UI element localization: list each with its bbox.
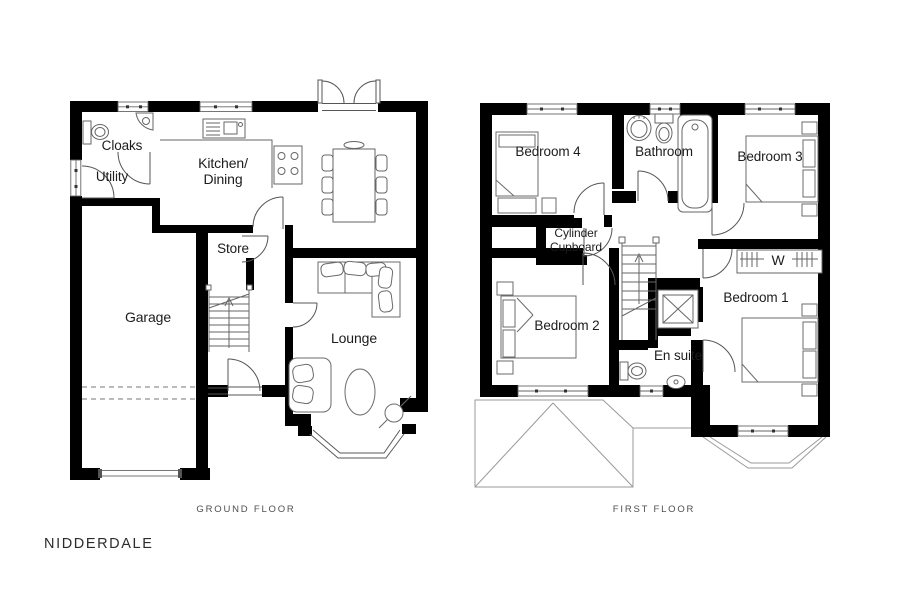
corner-sofa (318, 261, 400, 317)
ensuite-toilet (620, 362, 646, 380)
staircase-ground (206, 285, 252, 352)
cylinder-cupboard-line1: Cylinder (550, 227, 602, 241)
dining-table (322, 142, 387, 223)
kitchen-sink (203, 119, 245, 138)
first-floor-caption: FIRST FLOOR (613, 504, 695, 515)
room-label-bedroom4: Bedroom 4 (515, 144, 580, 160)
bed-double-bedroom3 (746, 122, 818, 216)
roof-outline (475, 400, 826, 487)
room-label-kitchen-dining: Kitchen/ Dining (198, 155, 248, 187)
room-label-lounge: Lounge (331, 330, 377, 346)
room-label-bedroom1: Bedroom 1 (723, 290, 788, 306)
room-label-cloaks: Cloaks (102, 138, 143, 154)
plot-title: NIDDERDALE (44, 536, 153, 552)
room-label-garage: Garage (125, 309, 171, 325)
kitchen-dining-line1: Kitchen/ (198, 155, 248, 171)
room-label-ensuite: En suite (654, 348, 702, 364)
french-door (318, 80, 380, 111)
room-label-bedroom3: Bedroom 3 (737, 149, 802, 165)
room-label-wardrobe: W (771, 252, 784, 268)
ensuite-basin (667, 376, 685, 389)
bathroom-toilet (655, 114, 673, 143)
bathroom-basin (627, 116, 651, 141)
bathtub (678, 115, 712, 212)
first-doors (574, 171, 744, 372)
kitchen-hob (274, 146, 302, 184)
room-label-cylinder-cupboard: Cylinder Cupboard (550, 227, 602, 255)
garage-door (82, 387, 196, 478)
ground-floor-caption: GROUND FLOOR (196, 504, 295, 515)
shower (658, 290, 698, 328)
kitchen-dining-line2: Dining (198, 171, 248, 187)
room-label-bathroom: Bathroom (635, 144, 693, 160)
room-label-utility: Utility (96, 169, 128, 185)
room-label-bedroom2: Bedroom 2 (534, 318, 599, 334)
floorplan-page: Cloaks Utility Kitchen/ Dining Store Gar… (0, 0, 900, 600)
cloaks-corner-basin (136, 113, 153, 130)
armchair (289, 358, 331, 412)
cylinder-cupboard-line2: Cupboard (550, 241, 602, 255)
coffee-table (345, 369, 375, 415)
bay-window (310, 430, 404, 458)
room-label-store: Store (217, 241, 249, 257)
bed-double-bedroom1 (742, 304, 818, 396)
